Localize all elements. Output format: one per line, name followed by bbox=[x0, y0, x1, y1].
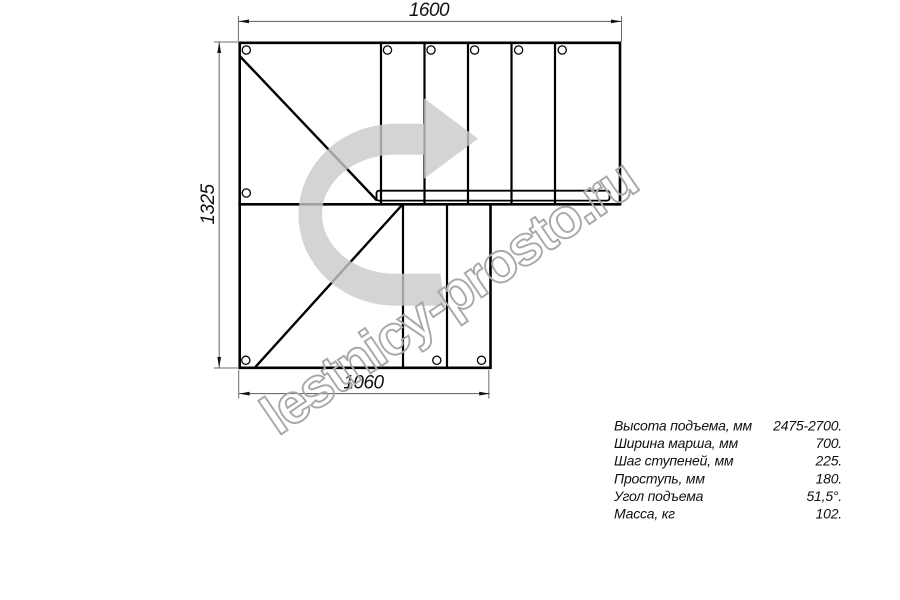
svg-text:Проступь, мм: Проступь, мм bbox=[614, 470, 705, 486]
svg-text:Шаг ступеней, мм: Шаг ступеней, мм bbox=[614, 453, 734, 469]
svg-text:700.: 700. bbox=[816, 435, 842, 451]
svg-text:Высота подъема, мм: Высота подъема, мм bbox=[614, 417, 753, 433]
svg-text:1325: 1325 bbox=[198, 183, 219, 224]
svg-text:1600: 1600 bbox=[409, 0, 450, 21]
svg-text:225.: 225. bbox=[815, 453, 842, 469]
svg-text:180.: 180. bbox=[816, 470, 842, 486]
svg-text:Масса, кг: Масса, кг bbox=[614, 506, 675, 522]
svg-text:51,5°.: 51,5°. bbox=[806, 488, 842, 504]
svg-text:Ширина марша, мм: Ширина марша, мм bbox=[614, 435, 739, 451]
svg-text:102.: 102. bbox=[816, 506, 842, 522]
svg-text:2475-2700.: 2475-2700. bbox=[772, 417, 842, 433]
svg-text:Угол подъема: Угол подъема bbox=[613, 488, 704, 504]
